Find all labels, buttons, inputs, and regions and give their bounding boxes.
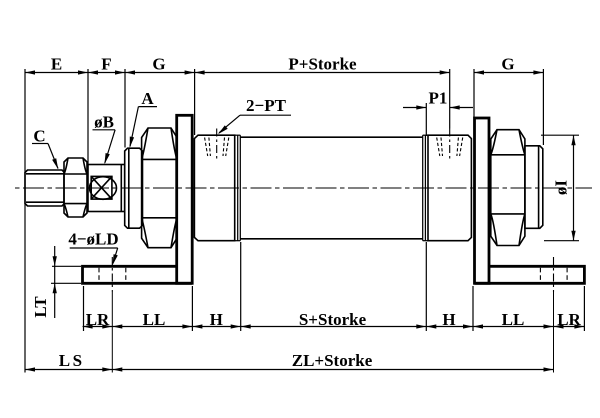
svg-text:G: G	[501, 55, 514, 74]
svg-text:S+Storke: S+Storke	[299, 310, 367, 329]
svg-text:LS: LS	[59, 351, 85, 370]
svg-text:2−PT: 2−PT	[246, 96, 287, 115]
svg-text:ZL+Storke: ZL+Storke	[292, 351, 373, 370]
svg-text:E: E	[51, 55, 62, 74]
svg-text:H: H	[210, 310, 223, 329]
svg-text:LL: LL	[502, 310, 525, 329]
svg-text:P+Storke: P+Storke	[288, 55, 357, 74]
svg-text:A: A	[141, 89, 154, 108]
svg-text:P1: P1	[429, 89, 448, 108]
svg-text:øB: øB	[94, 113, 114, 132]
svg-text:H: H	[442, 310, 455, 329]
svg-text:4−øLD: 4−øLD	[68, 230, 118, 249]
svg-text:LT: LT	[31, 296, 50, 318]
svg-text:LR: LR	[86, 310, 110, 329]
svg-text:G: G	[152, 55, 165, 74]
svg-text:C: C	[33, 126, 45, 145]
svg-text:F: F	[101, 55, 111, 74]
svg-text:LR: LR	[557, 310, 581, 329]
svg-text:øI: øI	[552, 180, 571, 196]
svg-text:LL: LL	[143, 310, 166, 329]
